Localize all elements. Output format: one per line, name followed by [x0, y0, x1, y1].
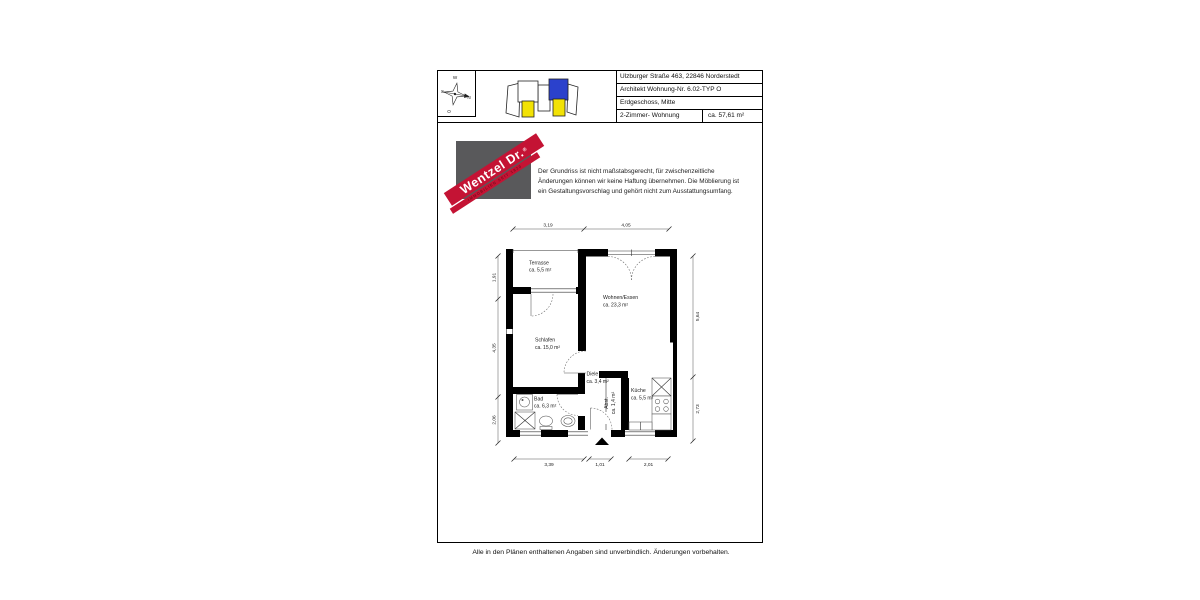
- dim-left-2: 4,35: [492, 343, 498, 353]
- table-row-floor: Erdgeschoss, Mitte: [617, 97, 762, 110]
- dim-right-2: 2,73: [695, 404, 701, 414]
- compass-o-label: O: [447, 109, 451, 114]
- screenshot-canvas: W S. N O Ulzburger Straße 463, 2: [0, 0, 1200, 600]
- header-divider: [438, 122, 762, 123]
- room-area-kueche: ca. 5,5 m²: [631, 396, 654, 402]
- table-row-address: Ulzburger Straße 463, 22846 Norderstedt: [617, 71, 762, 84]
- wall-notch: [507, 329, 513, 334]
- room-label-diele: Diele: [587, 372, 599, 378]
- room-label-abst: Abst.: [604, 397, 610, 409]
- room-area-wohnen-essen: ca. 23,3 m²: [603, 303, 628, 309]
- room-area-bad: ca. 6,3 m²: [534, 404, 557, 410]
- stove-icon: [652, 396, 671, 414]
- table-row-unit: Architekt Wohnung-Nr. 6.02-TYP O: [617, 84, 762, 97]
- dim-left-1: 1,91: [492, 273, 498, 283]
- building-tower-white: [518, 81, 538, 102]
- floorplan-document-page: W S. N O Ulzburger Straße 463, 2: [437, 70, 763, 543]
- dim-right-1: 5,64: [695, 312, 701, 322]
- dim-bottom-2: 1,01: [595, 462, 605, 468]
- building-highlight-blue: [549, 79, 568, 100]
- dim-bottom-1: 3,39: [544, 462, 554, 468]
- logo-brand-band: Wentzel Dr.®: [444, 133, 544, 205]
- bathroom-fixtures: [515, 395, 575, 430]
- building-right-wing: [567, 84, 578, 115]
- room-label-wohnen-essen: Wohnen/Essen: [603, 295, 638, 301]
- room-label-bad: Bad: [534, 397, 543, 403]
- building-highlight-yellow-2: [553, 99, 565, 116]
- site-plan-icon: [504, 77, 580, 121]
- building-highlight-yellow-1: [522, 101, 534, 117]
- floor-plan-area: Terrasse ca. 5,5 m² Wohnen/Essen ca. 23,…: [489, 216, 713, 476]
- table-row-type: 2-Zimmer- Wohnung ca. 57,61 m²: [617, 110, 762, 122]
- room-area-abst: ca. 1,4 m²: [611, 392, 617, 415]
- dim-top-2: 4,05: [621, 223, 631, 229]
- entrance-arrow-icon: [595, 438, 609, 446]
- room-area-schlafen: ca. 15,0 m²: [535, 345, 560, 351]
- compass-n-label: N: [467, 95, 470, 100]
- footer-text: Alle in den Plänen enthaltenen Angaben s…: [438, 549, 764, 556]
- room-area-terrasse: ca. 5,5 m²: [529, 268, 552, 274]
- kitchen-fixtures: [629, 378, 671, 430]
- room-area-diele: ca. 3,4 m²: [587, 379, 610, 385]
- disclaimer-line-2: Änderungen können wir keine Haftung über…: [538, 177, 753, 187]
- compass-icon: W S. N O: [438, 71, 475, 116]
- dim-left-3: 2,06: [492, 415, 498, 425]
- site-plan: [504, 77, 580, 126]
- brand-logo: IMMOBILIEN SEIT 1820 Wentzel Dr.®: [456, 141, 531, 199]
- compass-w-label: W: [453, 75, 458, 80]
- dim-bottom-3: 2,01: [644, 462, 654, 468]
- disclaimer-text: Der Grundriss ist nicht maßstabsgerecht,…: [538, 167, 753, 197]
- compass-cell: W S. N O: [438, 71, 476, 117]
- disclaimer-line-3: ein Gestaltungsvorschlag und gehört nich…: [538, 187, 753, 197]
- floor-plan-drawing: Terrasse ca. 5,5 m² Wohnen/Essen ca. 23,…: [489, 216, 713, 471]
- dim-top-1: 3,19: [543, 223, 553, 229]
- apartment-type: 2-Zimmer- Wohnung: [617, 110, 702, 122]
- building-mid-block: [538, 85, 550, 111]
- room-label-kueche: Küche: [631, 388, 646, 394]
- disclaimer-line-1: Der Grundriss ist nicht maßstabsgerecht,…: [538, 167, 753, 177]
- apartment-area: ca. 57,61 m²: [702, 110, 762, 122]
- room-label-schlafen: Schlafen: [535, 338, 555, 344]
- kitchen-cabinet: [652, 414, 671, 430]
- header-table: Ulzburger Straße 463, 22846 Norderstedt …: [616, 71, 762, 123]
- room-label-terrasse: Terrasse: [529, 261, 549, 267]
- compass-s-label: S.: [441, 89, 445, 94]
- toilet-icon: [540, 416, 553, 426]
